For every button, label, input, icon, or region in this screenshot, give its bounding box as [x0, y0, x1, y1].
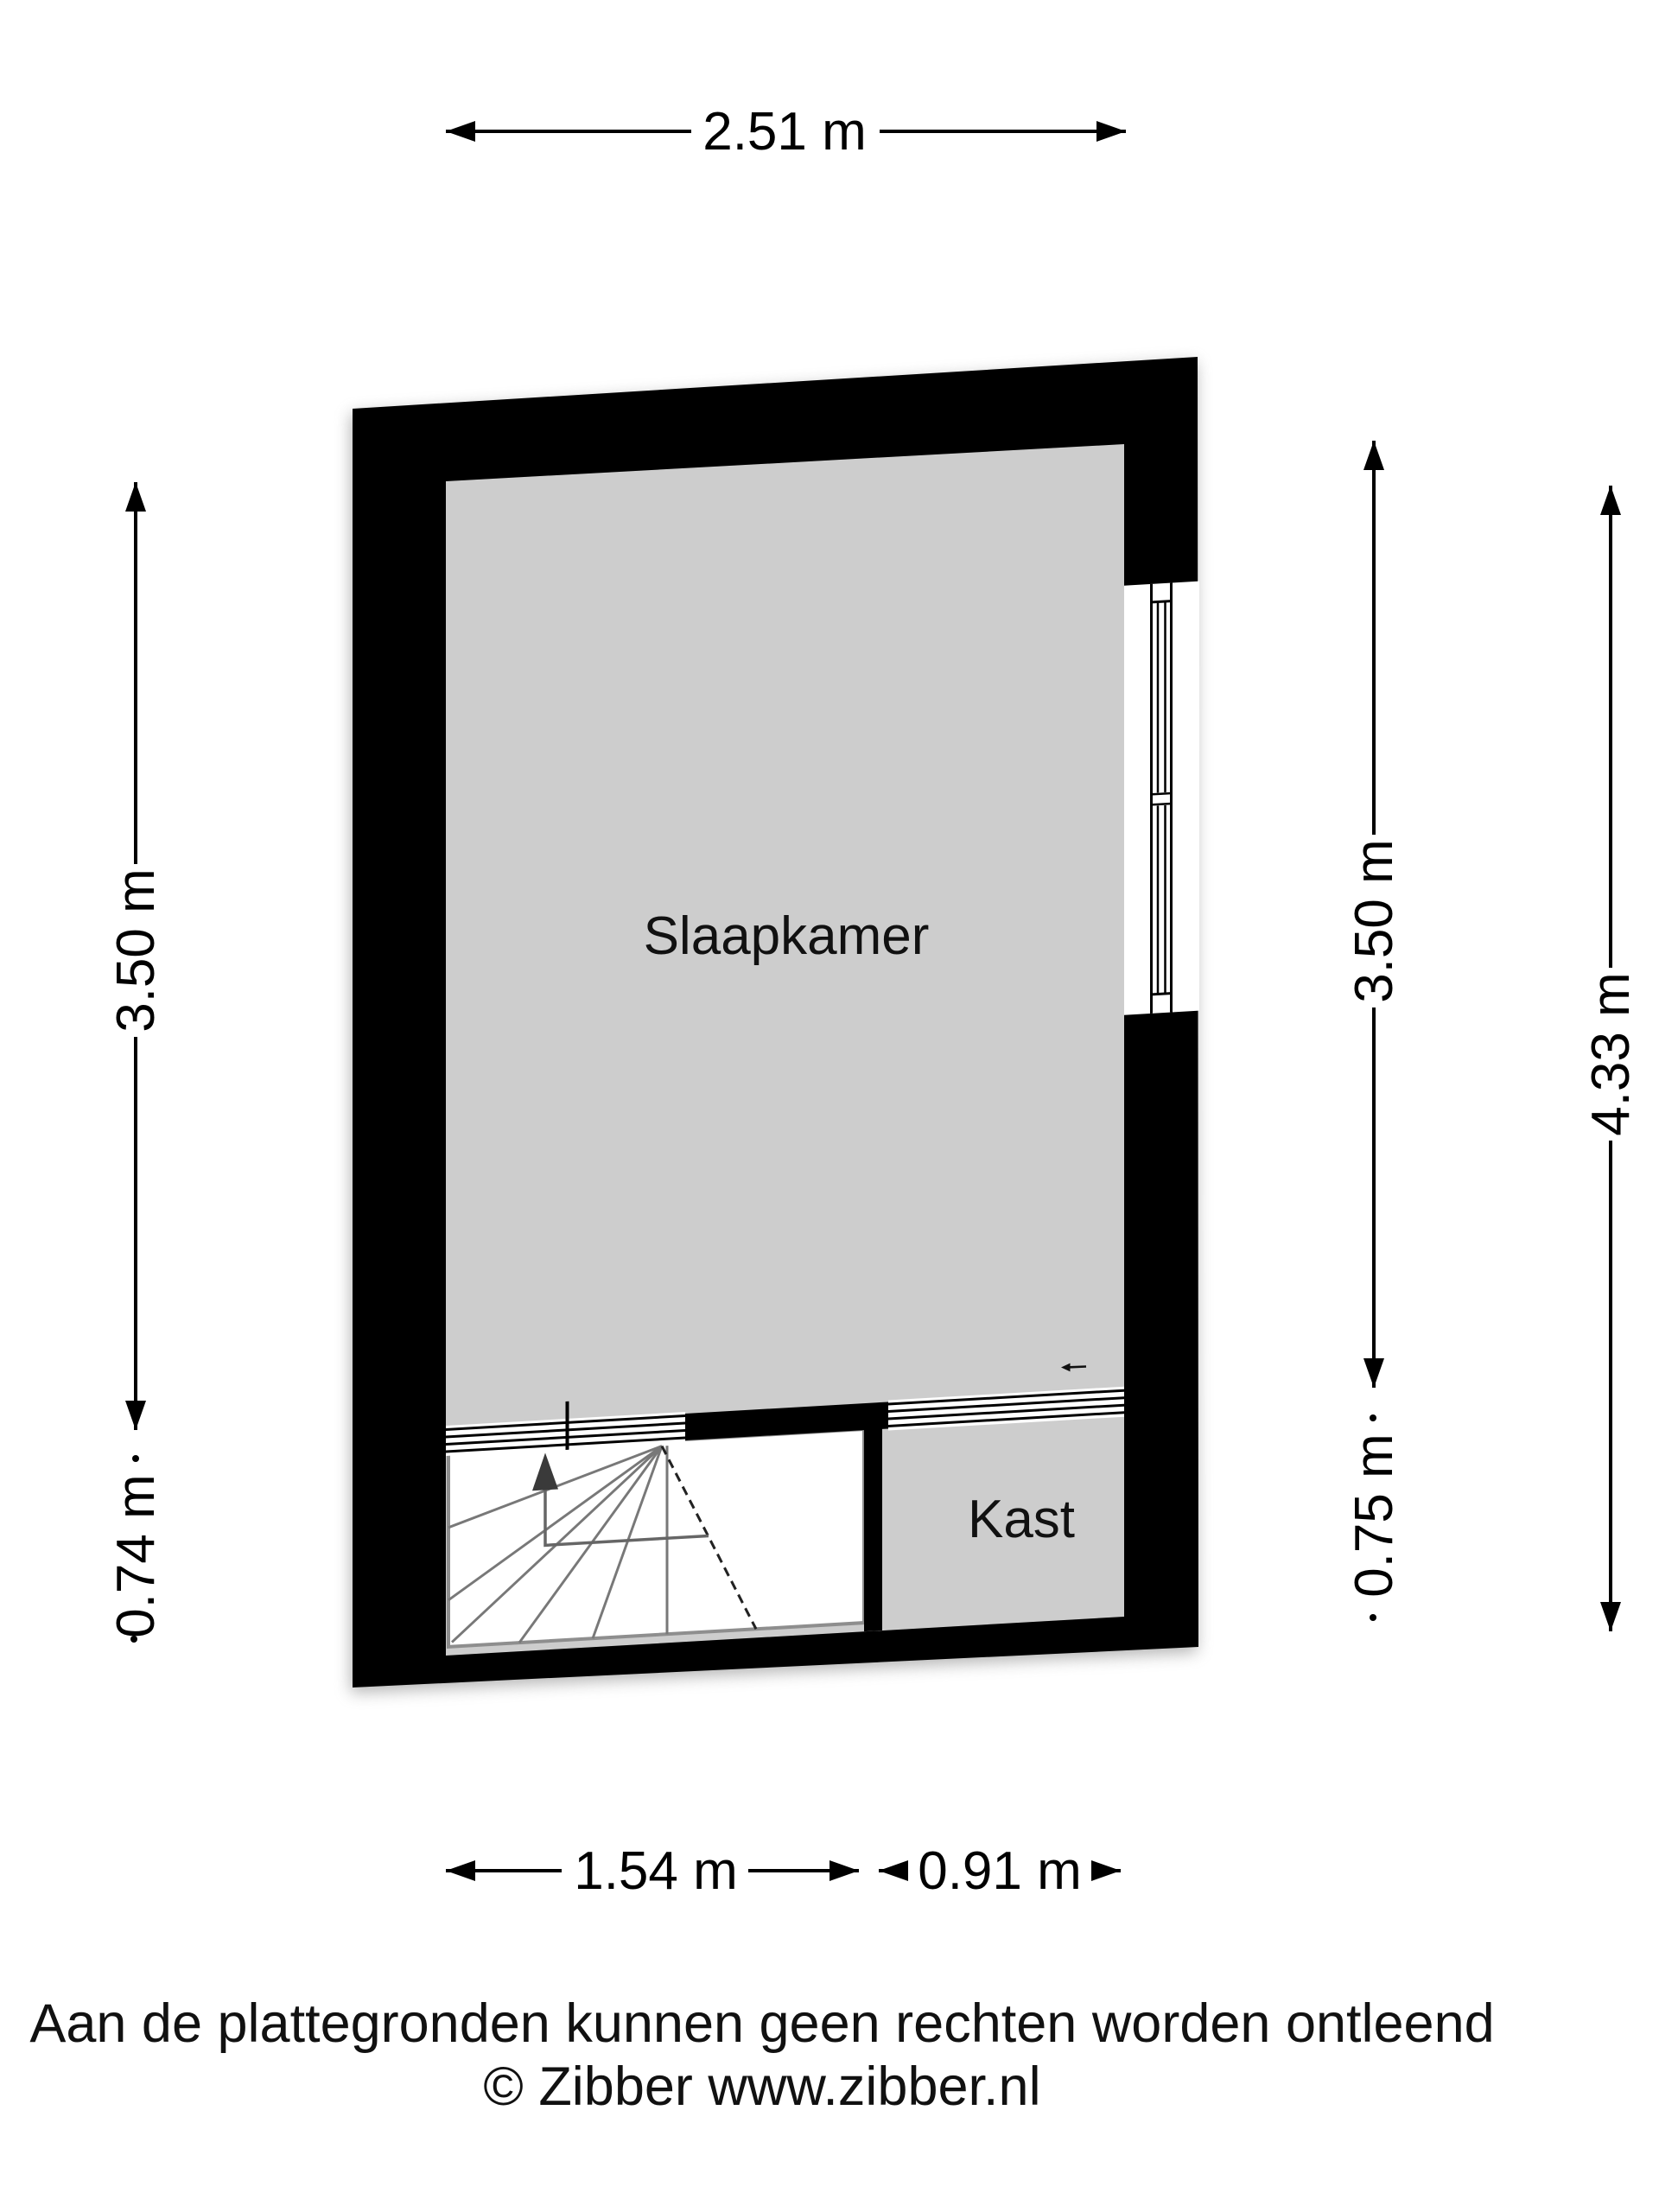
- svg-text:4.33 m: 4.33 m: [1581, 972, 1641, 1136]
- svg-text:0.91 m: 0.91 m: [918, 1841, 1082, 1901]
- svg-text:© Zibber www.zibber.nl: © Zibber www.zibber.nl: [483, 2056, 1040, 2117]
- svg-text:Aan de plattegronden kunnen ge: Aan de plattegronden kunnen geen rechten…: [29, 1993, 1494, 2054]
- svg-text:3.50 m: 3.50 m: [1344, 839, 1404, 1003]
- svg-text:Slaapkamer: Slaapkamer: [644, 906, 930, 966]
- svg-text:3.50 m: 3.50 m: [106, 868, 166, 1033]
- svg-text:1.54 m: 1.54 m: [574, 1841, 738, 1901]
- svg-text:0.74 m: 0.74 m: [106, 1474, 166, 1638]
- svg-text:Kast: Kast: [968, 1490, 1075, 1549]
- svg-text:2.51 m: 2.51 m: [702, 102, 867, 162]
- svg-text:0.75 m: 0.75 m: [1344, 1433, 1404, 1598]
